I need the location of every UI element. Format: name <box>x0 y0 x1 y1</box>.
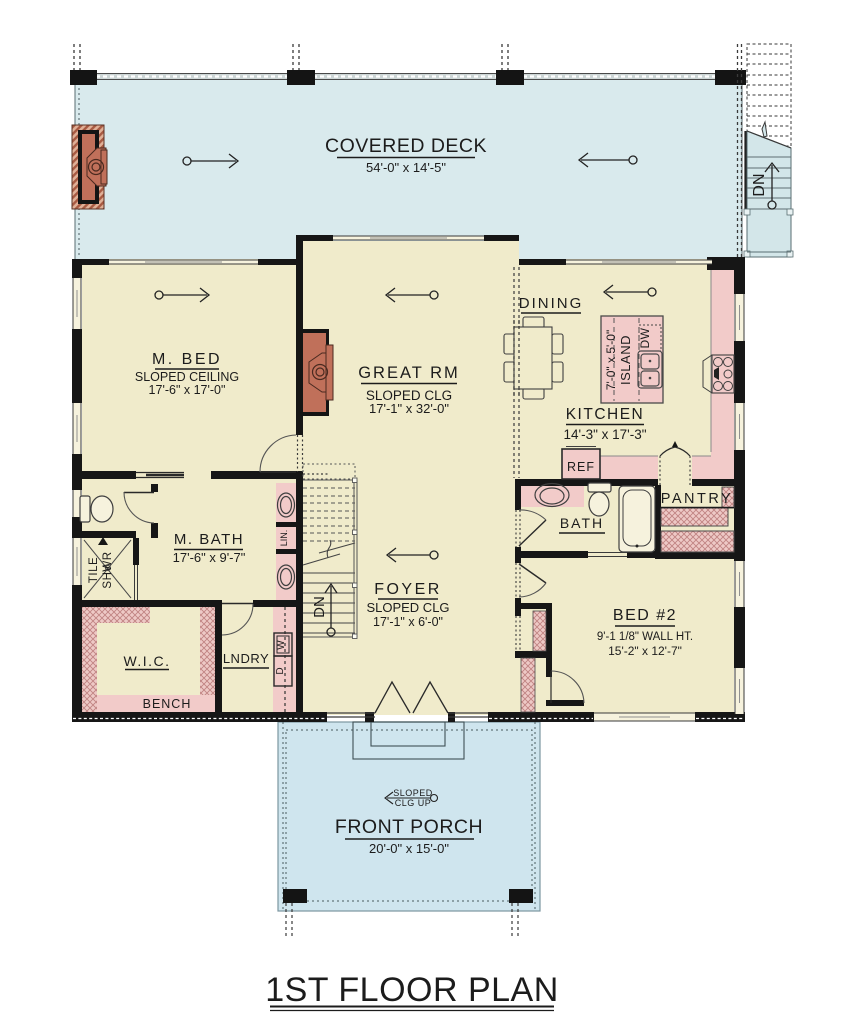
svg-text:COVERED DECK: COVERED DECK <box>325 135 487 157</box>
svg-text:SLOPED CEILING: SLOPED CEILING <box>135 370 239 384</box>
svg-text:DN: DN <box>751 173 768 196</box>
svg-text:LNDRY: LNDRY <box>223 651 269 666</box>
svg-text:54'-0" x 14'-5": 54'-0" x 14'-5" <box>366 160 446 175</box>
svg-text:LIN.: LIN. <box>279 530 289 547</box>
svg-text:ISLAND: ISLAND <box>618 335 633 385</box>
svg-text:M. BATH: M. BATH <box>174 531 244 548</box>
svg-text:1ST FLOOR PLAN: 1ST FLOOR PLAN <box>265 971 559 1009</box>
svg-text:W: W <box>276 640 287 650</box>
svg-text:17'-1" x 32'-0": 17'-1" x 32'-0" <box>369 401 449 416</box>
svg-text:D: D <box>275 667 286 674</box>
svg-text:KITCHEN: KITCHEN <box>566 406 645 423</box>
svg-text:14'-3" x 17'-3": 14'-3" x 17'-3" <box>563 427 646 442</box>
svg-text:SLOPED: SLOPED <box>393 788 433 798</box>
svg-text:DN: DN <box>311 596 328 618</box>
svg-text:15'-2" x 12'-7": 15'-2" x 12'-7" <box>608 644 682 658</box>
svg-text:BED #2: BED #2 <box>613 607 677 624</box>
svg-text:M. BED: M. BED <box>152 351 222 368</box>
svg-text:7'-0" x 5'-0": 7'-0" x 5'-0" <box>604 330 618 390</box>
svg-text:BATH: BATH <box>560 515 604 531</box>
svg-text:SHWR: SHWR <box>102 551 114 588</box>
svg-text:CLG UP: CLG UP <box>395 798 432 808</box>
svg-text:17'-1" x 6'-0": 17'-1" x 6'-0" <box>373 615 443 629</box>
svg-text:PANTRY: PANTRY <box>661 491 733 507</box>
svg-text:BENCH: BENCH <box>143 697 192 711</box>
svg-text:FOYER: FOYER <box>374 581 442 598</box>
svg-text:GREAT RM: GREAT RM <box>358 364 460 382</box>
svg-text:20'-0" x 15'-0": 20'-0" x 15'-0" <box>369 841 449 856</box>
svg-text:SLOPED CLG: SLOPED CLG <box>366 600 449 615</box>
svg-text:REF: REF <box>567 460 595 474</box>
svg-text:DINING: DINING <box>519 295 584 312</box>
svg-text:DW: DW <box>638 327 652 348</box>
svg-text:9'-1 1/8" WALL HT.: 9'-1 1/8" WALL HT. <box>597 631 693 643</box>
svg-text:FRONT PORCH: FRONT PORCH <box>335 816 483 838</box>
svg-text:TILE: TILE <box>88 557 100 583</box>
svg-text:17'-6" x 17'-0": 17'-6" x 17'-0" <box>149 383 226 397</box>
svg-text:17'-6" x 9'-7": 17'-6" x 9'-7" <box>173 550 246 565</box>
svg-text:W.I.C.: W.I.C. <box>123 653 170 669</box>
